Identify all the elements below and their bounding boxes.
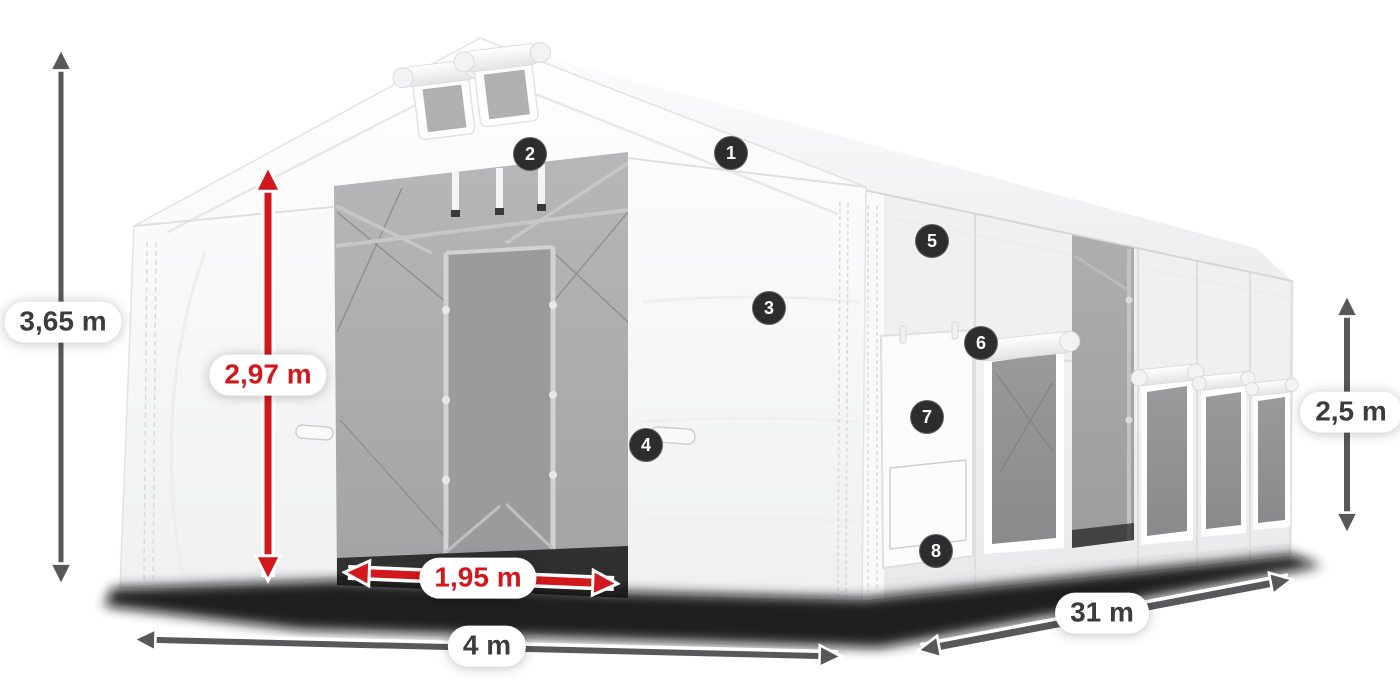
- callout-badge-7: 7: [910, 400, 944, 434]
- callout-badge-8: 8: [919, 534, 953, 568]
- callout-badge-3: 3: [752, 291, 786, 325]
- callout-badge-6: 6: [964, 326, 998, 360]
- dimension-arrows: [0, 0, 1400, 700]
- callout-badge-2: 2: [513, 137, 547, 171]
- dimension-label-total-height: 3,65 m: [4, 302, 121, 343]
- dimension-label-side-height: 2,5 m: [1300, 392, 1400, 433]
- dimension-label-gable-width: 4 m: [448, 626, 526, 667]
- callout-badge-4: 4: [629, 428, 663, 462]
- dimension-label-length: 31 m: [1055, 593, 1149, 634]
- callout-badge-1: 1: [714, 136, 748, 170]
- tent-dimension-diagram: 3,65 m 2,97 m 1,95 m 4 m 31 m 2,5 m 1 2 …: [0, 0, 1400, 700]
- dimension-label-entrance-height: 2,97 m: [209, 355, 326, 396]
- dimension-label-entrance-width: 1,95 m: [419, 558, 536, 599]
- callout-badge-5: 5: [915, 224, 949, 258]
